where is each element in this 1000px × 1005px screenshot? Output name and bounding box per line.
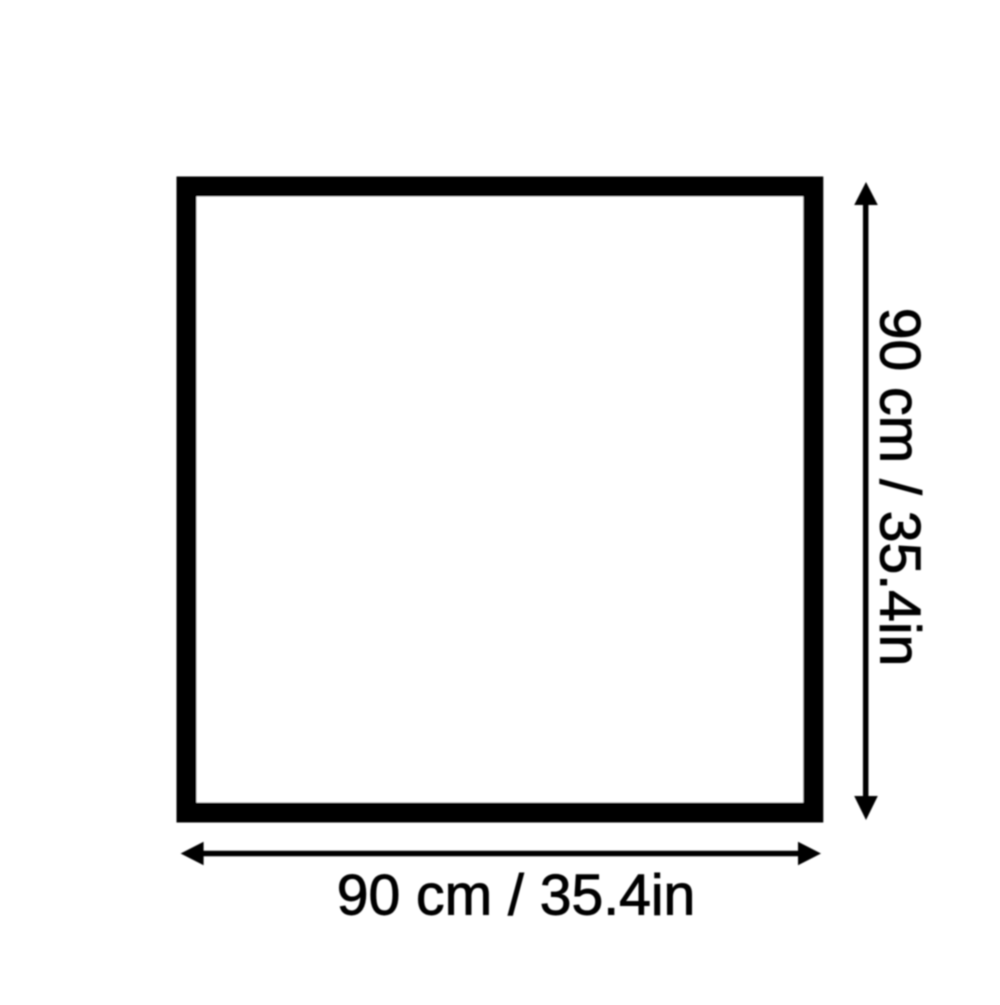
svg-text:90 cm / 35.4in: 90 cm / 35.4in <box>337 864 696 928</box>
svg-text:90 cm / 35.4in: 90 cm / 35.4in <box>868 308 932 667</box>
